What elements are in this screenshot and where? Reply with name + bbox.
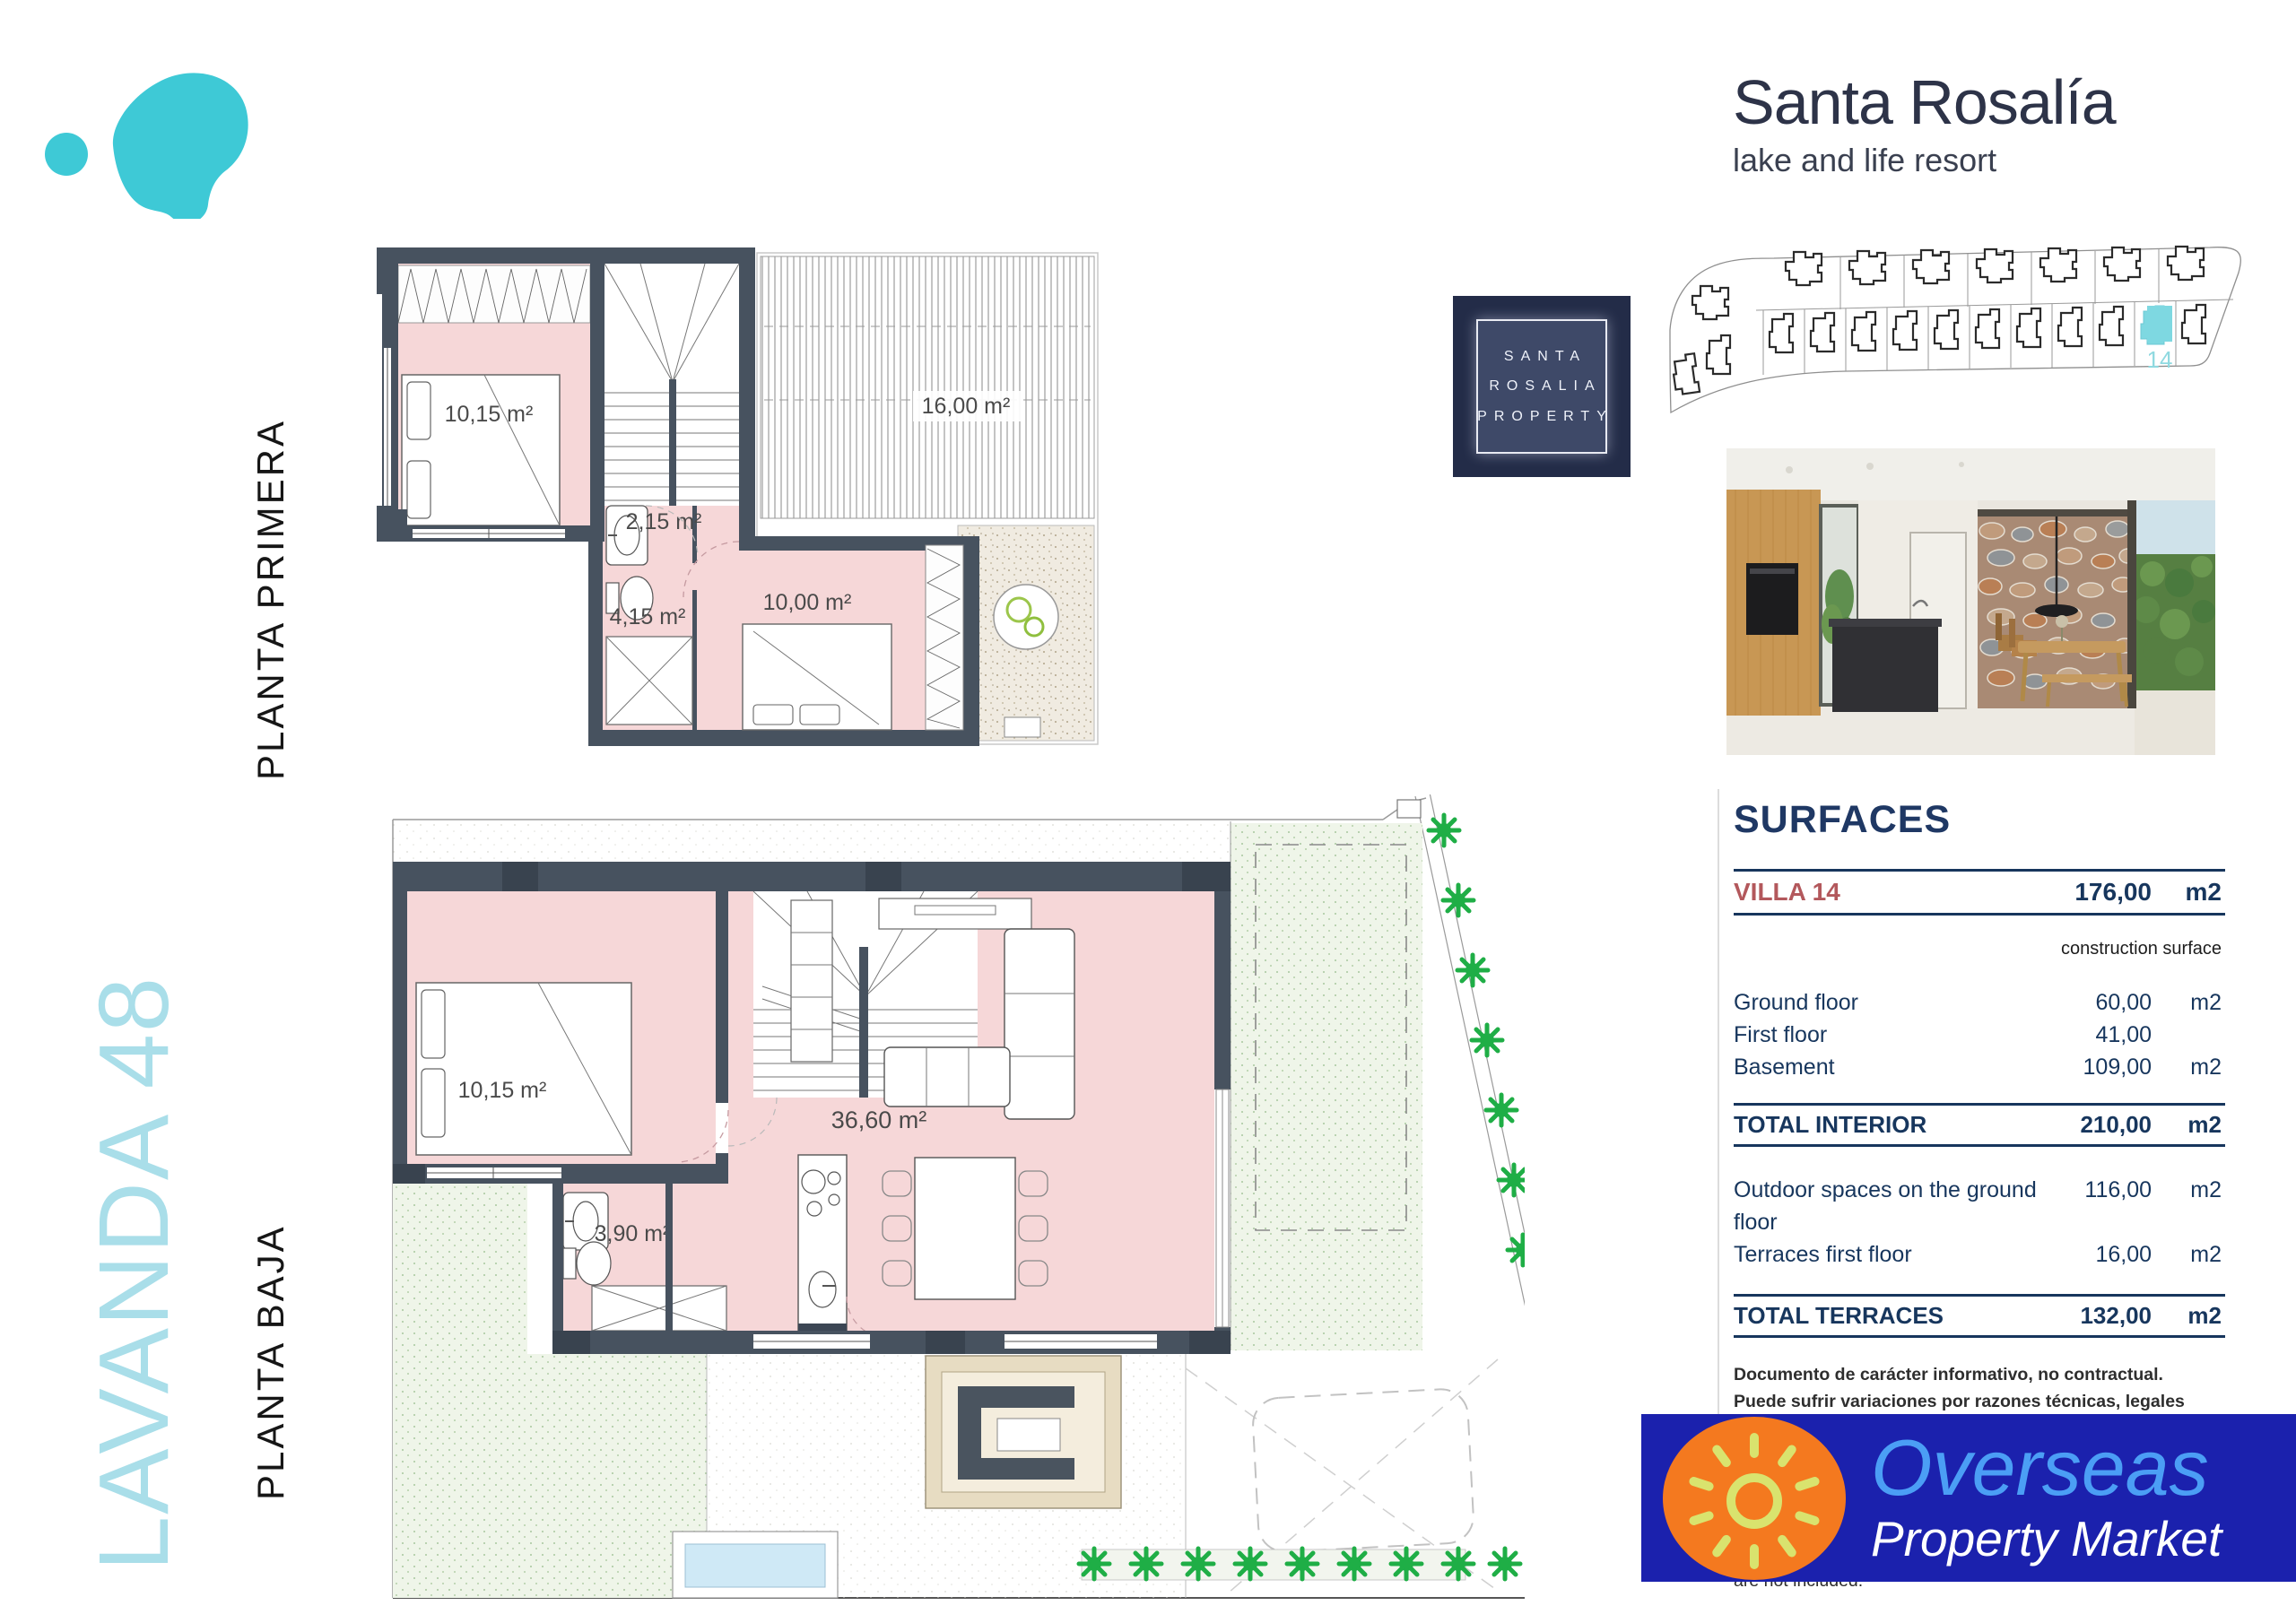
row-value: 116,00	[2044, 1174, 2152, 1206]
row-label: Outdoor spaces on the ground floor	[1734, 1174, 2044, 1238]
property-box-line3: PROPERTY	[1470, 402, 1613, 432]
agency-wordmark: Overseas Property Market	[1871, 1428, 2222, 1567]
surface-rows: Ground floor 60,00 m2 First floor 41,00 …	[1734, 986, 2225, 1083]
row-value: 109,00	[2044, 1051, 2152, 1083]
villa-value: 176,00	[2044, 878, 2152, 907]
project-name-label: LAVANDA 48	[77, 970, 191, 1571]
highlighted-unit-number: 14	[2147, 346, 2173, 373]
floor-plan-planta-baja: 10,15 m² 36,60 m²	[377, 794, 1525, 1605]
resort-tagline: lake and life resort	[1733, 142, 2235, 179]
row-unit: m2	[2152, 1174, 2222, 1206]
resort-name: Santa Rosalía	[1733, 70, 2235, 136]
row-label: Ground floor	[1734, 986, 2044, 1019]
total-unit: m2	[2152, 1111, 2222, 1139]
property-box-line1: SANTA	[1497, 342, 1587, 372]
row-unit: m2	[2152, 986, 2222, 1019]
property-box-inner: SANTA ROSALIA PROPERTY	[1476, 319, 1607, 454]
surfaces-title: SURFACES	[1734, 798, 2225, 842]
bedroom2-area-label: 10,00 m²	[763, 590, 852, 615]
agency-banner: Overseas Property Market	[1641, 1414, 2296, 1582]
total-label: TOTAL INTERIOR	[1734, 1111, 2044, 1139]
total-terraces-row: TOTAL TERRACES 132,00 m2	[1734, 1294, 2225, 1338]
floor-label-planta-baja: PLANTA BAJA	[249, 1227, 292, 1500]
bathroom-area-label: 4,15 m²	[610, 604, 686, 629]
table-row: Outdoor spaces on the ground floor 116,0…	[1734, 1174, 2225, 1238]
row-value: 16,00	[2044, 1238, 2152, 1271]
bedroom1-area-label: 10,15 m²	[445, 402, 534, 427]
living-area-label: 36,60 m²	[831, 1107, 927, 1133]
table-row: Terraces first floor 16,00 m2	[1734, 1238, 2225, 1271]
total-unit: m2	[2152, 1302, 2222, 1330]
floor-label-planta-primera: PLANTA PRIMERA	[249, 404, 292, 780]
row-label: First floor	[1734, 1019, 2044, 1051]
gf-bathroom-area-label: 3,90 m²	[595, 1221, 671, 1246]
row-value: 41,00	[2044, 1019, 2152, 1051]
total-interior-row: TOTAL INTERIOR 210,00 m2	[1734, 1103, 2225, 1147]
sun-icon	[1659, 1414, 1849, 1583]
row-label: Terraces first floor	[1734, 1238, 2044, 1271]
gf-bedroom-area-label: 10,15 m²	[458, 1078, 547, 1103]
total-label: TOTAL TERRACES	[1734, 1302, 2044, 1330]
row-label: Basement	[1734, 1051, 2044, 1083]
table-row: Ground floor 60,00 m2	[1734, 986, 2225, 1019]
site-plan: 14	[1657, 224, 2249, 423]
construction-surface-note: construction surface	[1734, 939, 2222, 959]
floor-plan-planta-primera: 16,00 m² 10,15 m²	[377, 240, 1112, 751]
agency-subtitle: Property Market	[1871, 1511, 2222, 1567]
villa-total-row: VILLA 14 176,00 m2	[1734, 869, 2225, 916]
surfaces-panel: SURFACES VILLA 14 176,00 m2 construction…	[1718, 789, 2225, 1421]
terrace-area-label: 16,00 m²	[922, 394, 1011, 419]
villa-unit: m2	[2152, 878, 2222, 907]
brochure-page: LAVANDA 48 PLANTA PRIMERA PLANTA BAJA 16…	[0, 0, 2296, 1623]
property-box-logo: SANTA ROSALIA PROPERTY	[1453, 296, 1631, 477]
row-unit: m2	[2152, 1238, 2222, 1271]
agency-name: Overseas	[1871, 1428, 2222, 1507]
table-row: First floor 41,00	[1734, 1019, 2225, 1051]
total-value: 132,00	[2044, 1302, 2152, 1330]
row-unit: m2	[2152, 1051, 2222, 1083]
hall-area-label: 2,15 m²	[626, 509, 702, 534]
row-value: 60,00	[2044, 986, 2152, 1019]
interior-photo	[1726, 448, 2215, 755]
site-plan-highlighted-unit: 14	[2141, 306, 2172, 373]
property-box-line2: ROSALIA	[1482, 371, 1601, 402]
lake-blob-logo-icon	[39, 39, 264, 219]
outdoor-rows: Outdoor spaces on the ground floor 116,0…	[1734, 1174, 2225, 1271]
total-value: 210,00	[2044, 1111, 2152, 1139]
resort-wordmark: Santa Rosalía lake and life resort	[1733, 70, 2235, 179]
table-row: Basement 109,00 m2	[1734, 1051, 2225, 1083]
villa-label: VILLA 14	[1734, 878, 2044, 907]
